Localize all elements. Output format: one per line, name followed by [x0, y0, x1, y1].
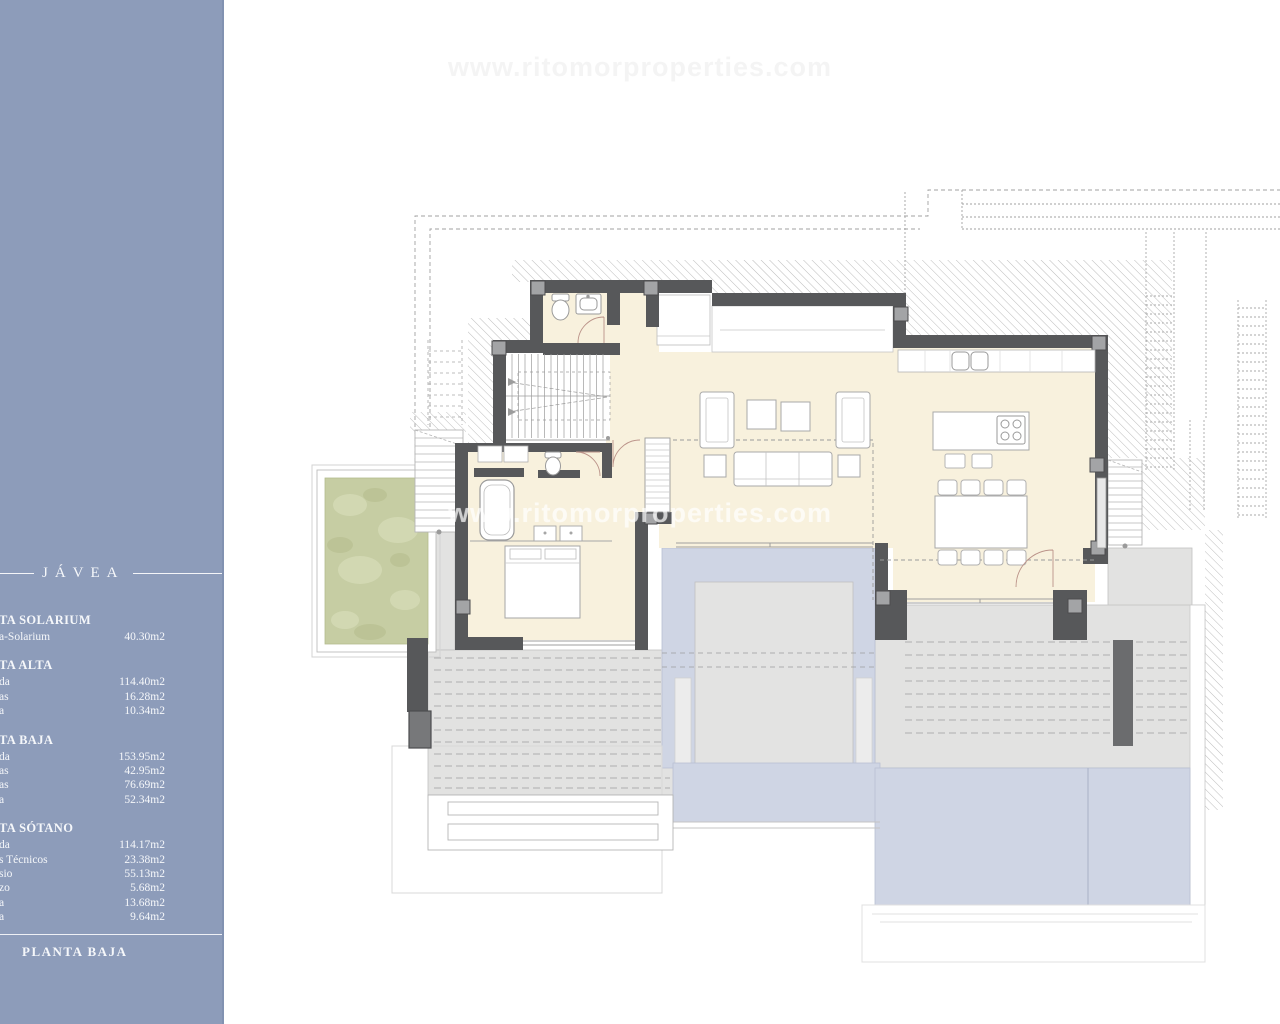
area-row: as 16.28m2 [0, 690, 165, 704]
stool [972, 454, 992, 468]
area-value: 55.13m2 [124, 867, 165, 881]
bed [505, 546, 580, 618]
area-label: as [0, 690, 9, 704]
side-table [704, 455, 726, 477]
garden-wall-stub [407, 638, 428, 712]
location-title: JÁVEA [42, 565, 125, 582]
title-rule-right [133, 573, 223, 574]
area-label: da [0, 675, 10, 689]
area-value: 10.34m2 [124, 704, 165, 718]
area-value: 9.64m2 [130, 910, 165, 924]
section-title: TA BAJA [0, 732, 165, 748]
area-list: TA SOLARIUM a-Solarium 40.30m2 TA ALTA d… [0, 612, 165, 938]
kitchen-counter [898, 350, 1095, 372]
exterior-stair-east [1108, 460, 1142, 549]
area-row: sio 55.13m2 [0, 867, 165, 881]
area-row: da 114.40m2 [0, 675, 165, 689]
plan-level-title: PLANTA BAJA [22, 944, 127, 960]
side-table [838, 455, 860, 477]
area-value: 153.95m2 [119, 750, 165, 764]
location-title-row: JÁVEA [0, 565, 222, 582]
area-row: da 153.95m2 [0, 750, 165, 764]
dining-table [935, 496, 1027, 548]
area-value: 42.95m2 [124, 764, 165, 778]
section-planta-sotano: TA SÓTANO da 114.17m2 s Técnicos 23.38m2… [0, 820, 165, 924]
area-label: a [0, 704, 4, 718]
area-value: 114.40m2 [119, 675, 165, 689]
sidebar: JÁVEA TA SOLARIUM a-Solarium 40.30m2 TA … [0, 0, 224, 1024]
area-row: a 9.64m2 [0, 910, 165, 924]
sidebar-divider [0, 934, 222, 935]
area-value: 76.69m2 [124, 778, 165, 792]
section-title: TA SÓTANO [0, 820, 165, 836]
area-row: as 76.69m2 [0, 778, 165, 792]
wardrobe-shaft [645, 438, 670, 512]
area-label: s Técnicos [0, 853, 48, 867]
section-title: TA ALTA [0, 657, 165, 673]
area-label: sio [0, 867, 12, 881]
section-planta-solarium: TA SOLARIUM a-Solarium 40.30m2 [0, 612, 165, 644]
armchair-left [700, 392, 734, 448]
garden-pillar [409, 711, 431, 748]
area-label: a [0, 896, 4, 910]
area-row: s Técnicos 23.38m2 [0, 853, 165, 867]
wc-mid-fixtures [545, 452, 561, 475]
area-value: 5.68m2 [130, 881, 165, 895]
area-label: da [0, 838, 10, 852]
area-row: a-Solarium 40.30m2 [0, 630, 165, 644]
area-row: a 52.34m2 [0, 793, 165, 807]
area-label: a-Solarium [0, 630, 50, 644]
area-value: 23.38m2 [124, 853, 165, 867]
area-row: a 10.34m2 [0, 704, 165, 718]
area-label: zo [0, 881, 10, 895]
coffee-table [747, 400, 776, 429]
armchair-right [836, 392, 870, 448]
area-row: a 13.68m2 [0, 896, 165, 910]
sofa [734, 452, 832, 486]
area-value: 52.34m2 [124, 793, 165, 807]
section-title: TA SOLARIUM [0, 612, 165, 628]
area-label: a [0, 910, 4, 924]
stool [945, 454, 965, 468]
section-planta-alta: TA ALTA da 114.40m2 as 16.28m2 a 10.34m2 [0, 657, 165, 718]
title-rule-left [0, 573, 34, 574]
area-value: 114.17m2 [119, 838, 165, 852]
area-label: a [0, 793, 4, 807]
area-value: 13.68m2 [124, 896, 165, 910]
area-row: da 114.17m2 [0, 838, 165, 852]
area-label: as [0, 764, 9, 778]
coffee-table [781, 402, 810, 431]
area-row: as 42.95m2 [0, 764, 165, 778]
area-label: as [0, 778, 9, 792]
terrace-pillar [1113, 640, 1133, 746]
area-value: 16.28m2 [124, 690, 165, 704]
area-label: da [0, 750, 10, 764]
area-row: zo 5.68m2 [0, 881, 165, 895]
area-value: 40.30m2 [124, 630, 165, 644]
section-planta-baja: TA BAJA da 153.95m2 as 42.95m2 as 76.69m… [0, 732, 165, 808]
